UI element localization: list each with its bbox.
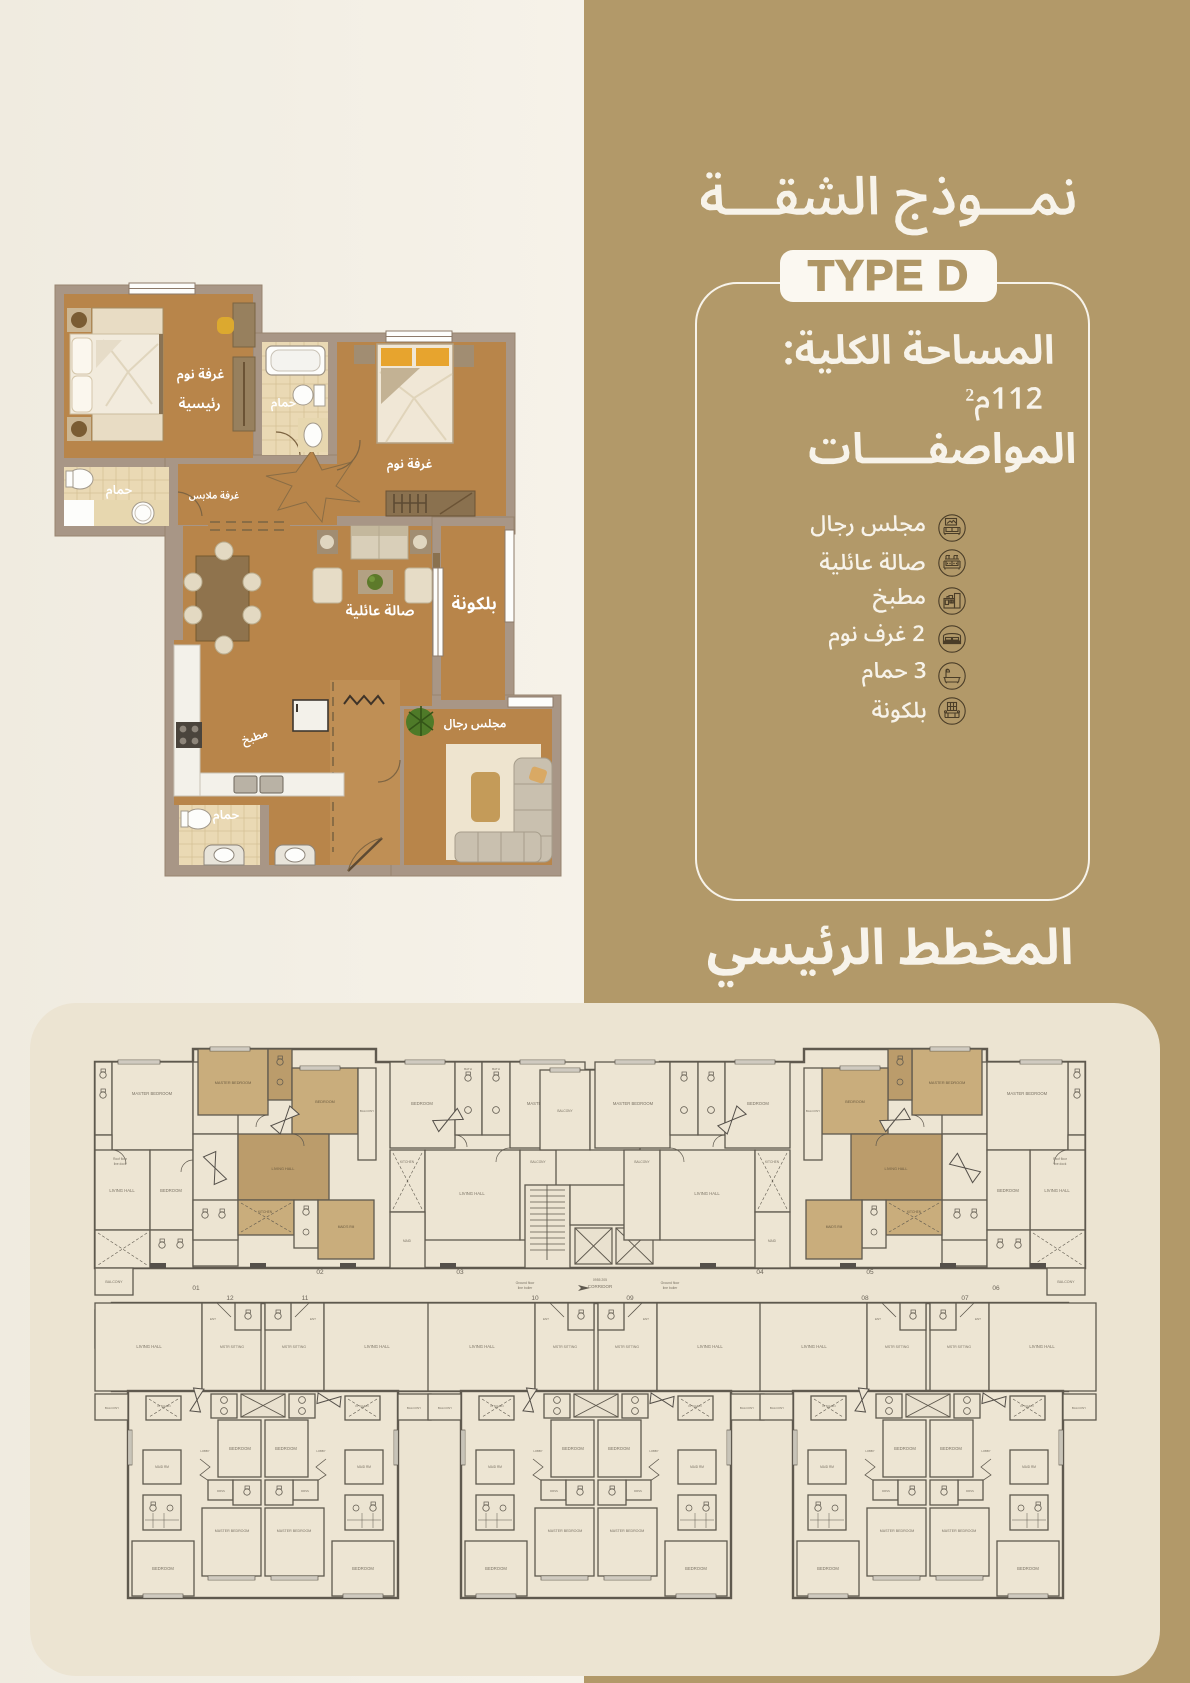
svg-text:LIVING HALL: LIVING HALL <box>1044 1188 1070 1193</box>
svg-text:LIVING HALL: LIVING HALL <box>801 1344 827 1349</box>
svg-text:MASTER BEDROOM: MASTER BEDROOM <box>942 1529 977 1533</box>
svg-text:LIVING HALL: LIVING HALL <box>694 1191 720 1196</box>
svg-text:KITCHEN: KITCHEN <box>157 1404 170 1408</box>
svg-text:DRSS: DRSS <box>966 1489 974 1493</box>
svg-text:BALCONY: BALCONY <box>770 1406 784 1410</box>
svg-text:08: 08 <box>861 1295 869 1302</box>
svg-text:Ground floor: Ground floor <box>516 1281 536 1285</box>
svg-text:LIVING HALL: LIVING HALL <box>469 1344 495 1349</box>
svg-text:KITCHEN: KITCHEN <box>490 1404 503 1408</box>
svg-text:LIVING HALL: LIVING HALL <box>364 1344 390 1349</box>
svg-text:07: 07 <box>961 1295 969 1302</box>
svg-text:LIVING HALL: LIVING HALL <box>1029 1344 1055 1349</box>
svg-text:05: 05 <box>866 1269 874 1276</box>
svg-text:LIVING HALL: LIVING HALL <box>459 1191 485 1196</box>
svg-text:MAID RM: MAID RM <box>357 1465 371 1469</box>
svg-text:LOBBY: LOBBY <box>316 1449 325 1453</box>
svg-text:MAID RM: MAID RM <box>155 1465 169 1469</box>
svg-text:MAID RM: MAID RM <box>820 1465 834 1469</box>
svg-text:ENT: ENT <box>643 1317 649 1321</box>
svg-text:09: 09 <box>626 1295 634 1302</box>
svg-text:BEDROOM: BEDROOM <box>997 1188 1019 1193</box>
svg-text:MSTR SITTING: MSTR SITTING <box>220 1345 244 1349</box>
svg-text:MASTER BEDROOM: MASTER BEDROOM <box>1007 1091 1048 1096</box>
svg-text:CORRIDOR: CORRIDOR <box>588 1284 613 1289</box>
svg-text:BEDROOM: BEDROOM <box>894 1446 916 1451</box>
svg-text:BALCONY: BALCONY <box>634 1160 650 1164</box>
svg-text:BALCONY: BALCONY <box>407 1406 421 1410</box>
svg-text:MAID: MAID <box>768 1239 777 1243</box>
svg-text:LOBBY: LOBBY <box>649 1449 658 1453</box>
svg-text:KITCHEN: KITCHEN <box>258 1210 273 1214</box>
svg-text:DRSS: DRSS <box>550 1489 558 1493</box>
svg-text:BEDROOM: BEDROOM <box>411 1101 433 1106</box>
svg-text:BALCONY: BALCONY <box>1072 1406 1086 1410</box>
svg-text:ENT: ENT <box>310 1317 316 1321</box>
svg-text:03: 03 <box>456 1269 464 1276</box>
svg-text:0955 205: 0955 205 <box>593 1278 607 1282</box>
svg-text:BEDROOM: BEDROOM <box>229 1446 251 1451</box>
svg-text:line dock: line dock <box>114 1162 127 1166</box>
svg-text:line dock: line dock <box>1054 1162 1067 1166</box>
svg-text:BALCONY: BALCONY <box>360 1109 374 1113</box>
svg-text:01: 01 <box>192 1285 200 1292</box>
svg-text:MASTER BEDROOM: MASTER BEDROOM <box>929 1081 966 1085</box>
svg-text:MASTER BEDROOM: MASTER BEDROOM <box>215 1529 250 1533</box>
svg-text:BATH: BATH <box>492 1067 500 1071</box>
svg-text:DRSS: DRSS <box>301 1489 309 1493</box>
svg-text:ENT: ENT <box>543 1317 549 1321</box>
svg-text:MAID'S RM: MAID'S RM <box>338 1225 355 1229</box>
svg-text:BEDROOM: BEDROOM <box>315 1100 335 1104</box>
svg-text:BEDROOM: BEDROOM <box>608 1446 630 1451</box>
svg-text:MASTER BEDROOM: MASTER BEDROOM <box>132 1091 173 1096</box>
svg-text:BEDROOM: BEDROOM <box>160 1188 182 1193</box>
svg-text:MAID RM: MAID RM <box>1022 1465 1036 1469</box>
svg-text:BEDROOM: BEDROOM <box>940 1446 962 1451</box>
svg-text:BEDROOM: BEDROOM <box>747 1101 769 1106</box>
svg-text:DRSS: DRSS <box>217 1489 225 1493</box>
svg-text:MASTER BEDROOM: MASTER BEDROOM <box>610 1529 645 1533</box>
svg-text:KITCHEN: KITCHEN <box>907 1210 922 1214</box>
svg-text:Ground floor: Ground floor <box>661 1281 681 1285</box>
svg-text:MASTER BEDROOM: MASTER BEDROOM <box>548 1529 583 1533</box>
svg-text:MSTR SITTING: MSTR SITTING <box>553 1345 577 1349</box>
svg-text:ENT: ENT <box>210 1317 216 1321</box>
svg-text:line boiler: line boiler <box>518 1286 533 1290</box>
svg-text:MAID'S RM: MAID'S RM <box>826 1225 843 1229</box>
svg-text:LOBBY: LOBBY <box>981 1449 990 1453</box>
svg-text:LIVING HALL: LIVING HALL <box>136 1344 162 1349</box>
svg-text:DRSS: DRSS <box>882 1489 890 1493</box>
svg-text:MSTR SITTING: MSTR SITTING <box>282 1345 306 1349</box>
svg-text:BEDROOM: BEDROOM <box>685 1566 707 1571</box>
svg-text:BALCONY: BALCONY <box>740 1406 754 1410</box>
svg-text:MASTER BEDROOM: MASTER BEDROOM <box>215 1081 252 1085</box>
svg-text:02: 02 <box>316 1269 324 1276</box>
svg-text:MSTR SITTING: MSTR SITTING <box>947 1345 971 1349</box>
svg-text:LIVING HALL: LIVING HALL <box>884 1167 907 1171</box>
svg-text:BEDROOM: BEDROOM <box>562 1446 584 1451</box>
svg-text:MSTR SITTING: MSTR SITTING <box>885 1345 909 1349</box>
svg-text:KITCHEN: KITCHEN <box>400 1160 415 1164</box>
svg-text:MAID: MAID <box>403 1239 412 1243</box>
svg-text:BEDROOM: BEDROOM <box>1017 1566 1039 1571</box>
svg-text:BEDROOM: BEDROOM <box>275 1446 297 1451</box>
svg-text:LIVING HALL: LIVING HALL <box>697 1344 723 1349</box>
svg-text:LOBBY: LOBBY <box>533 1449 542 1453</box>
svg-text:BALCONY: BALCONY <box>557 1109 573 1113</box>
svg-text:KITCHEN: KITCHEN <box>1020 1404 1033 1408</box>
svg-text:BALCONY: BALCONY <box>1057 1280 1075 1284</box>
svg-text:KITCHEN: KITCHEN <box>688 1404 701 1408</box>
svg-text:LOBBY: LOBBY <box>200 1449 209 1453</box>
svg-text:BATH: BATH <box>464 1067 472 1071</box>
svg-text:DRSS: DRSS <box>634 1489 642 1493</box>
svg-text:06: 06 <box>992 1285 1000 1292</box>
svg-text:BEDROOM: BEDROOM <box>817 1566 839 1571</box>
svg-text:11: 11 <box>302 1295 309 1302</box>
svg-text:BEDROOM: BEDROOM <box>152 1566 174 1571</box>
svg-text:MAID RM: MAID RM <box>690 1465 704 1469</box>
svg-text:12: 12 <box>226 1295 234 1302</box>
svg-text:BALCONY: BALCONY <box>530 1160 546 1164</box>
svg-text:BEDROOM: BEDROOM <box>845 1100 865 1104</box>
svg-text:KITCHEN: KITCHEN <box>765 1160 780 1164</box>
svg-text:LIVING HALL: LIVING HALL <box>271 1167 294 1171</box>
svg-text:LOBBY: LOBBY <box>865 1449 874 1453</box>
svg-text:BEDROOM: BEDROOM <box>485 1566 507 1571</box>
svg-text:ENT: ENT <box>975 1317 981 1321</box>
svg-text:MAID RM: MAID RM <box>488 1465 502 1469</box>
svg-text:KITCHEN: KITCHEN <box>355 1404 368 1408</box>
svg-text:KITCHEN: KITCHEN <box>822 1404 835 1408</box>
svg-text:MASTER BEDROOM: MASTER BEDROOM <box>277 1529 312 1533</box>
svg-text:MSTR SITTING: MSTR SITTING <box>615 1345 639 1349</box>
svg-text:BEDROOM: BEDROOM <box>352 1566 374 1571</box>
svg-text:MASTER BEDROOM: MASTER BEDROOM <box>880 1529 915 1533</box>
svg-text:LIVING HALL: LIVING HALL <box>109 1188 135 1193</box>
svg-text:BALCONY: BALCONY <box>438 1406 452 1410</box>
svg-text:10: 10 <box>531 1295 539 1302</box>
svg-text:line boiler: line boiler <box>663 1286 678 1290</box>
svg-text:BALCONY: BALCONY <box>105 1406 119 1410</box>
svg-text:ENT: ENT <box>875 1317 881 1321</box>
svg-text:04: 04 <box>756 1269 764 1276</box>
svg-text:MASTER BEDROOM: MASTER BEDROOM <box>613 1101 654 1106</box>
svg-text:BALCONY: BALCONY <box>806 1109 820 1113</box>
svg-text:BALCONY: BALCONY <box>105 1280 123 1284</box>
